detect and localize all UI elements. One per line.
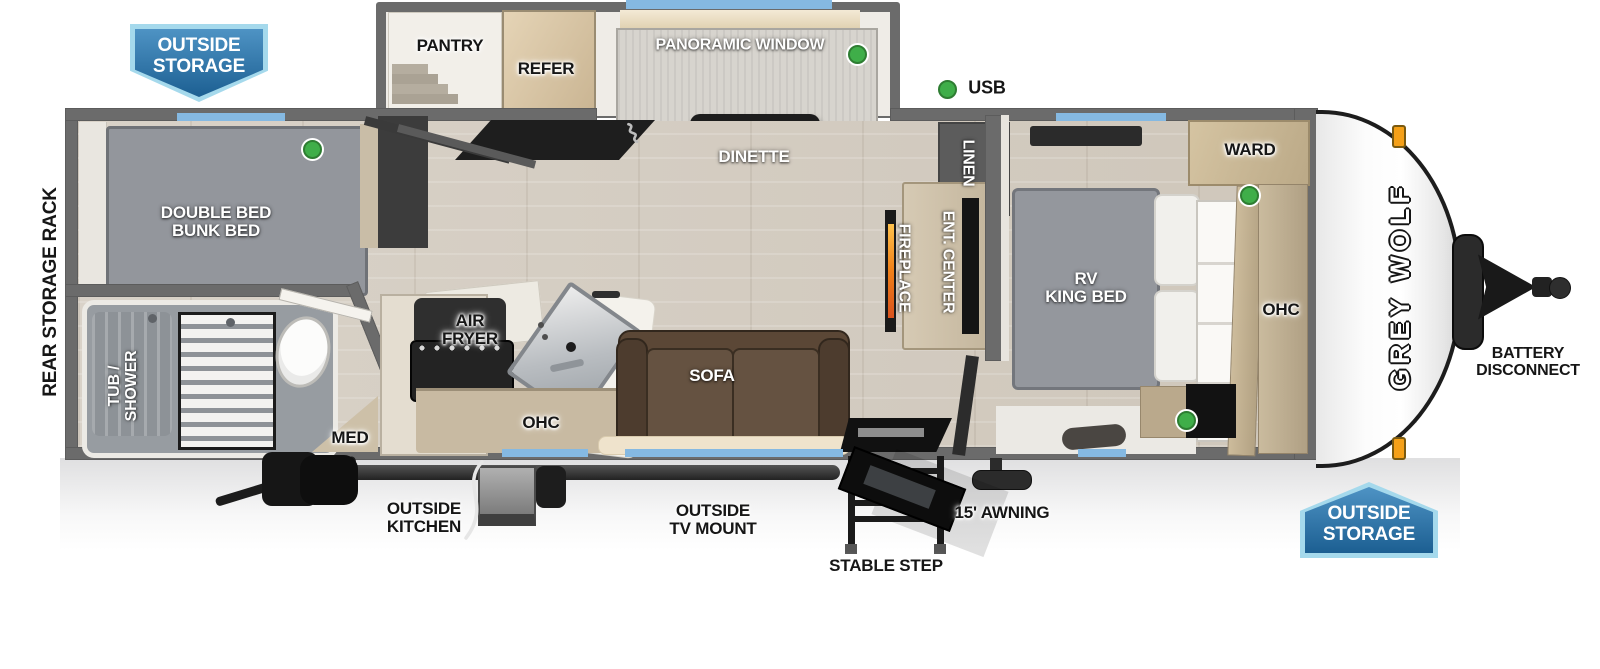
usb-port-icon [303,140,322,159]
awning-label: 15' AWNING [955,504,1050,522]
counter-handle [592,291,620,298]
fireplace-label: FIREPLACE [895,224,912,313]
brand-logo: GREY WOLF [1385,136,1425,436]
entry-step-tread [858,428,924,437]
sink-knob [542,334,548,340]
slideout-window-strip [626,0,832,9]
outside-tv-mount-label: OUTSIDE TV MOUNT [669,502,756,538]
usb-port-icon [1240,186,1259,205]
tub-shower-label: TUB / SHOWER [107,351,141,422]
wardrobe-shelf-line [1198,322,1234,325]
bedroom-wall-face [1001,115,1009,361]
bunk-bed-label: DOUBLE BED BUNK BED [161,204,271,240]
sofa-cushion [646,348,734,446]
bunk-head-pad [79,122,107,290]
sofa-label: SOFA [689,367,735,385]
stable-step-foot [845,544,857,554]
kitchen-ohc-cabinet [416,388,616,453]
outside-kitchen-label: OUTSIDE KITCHEN [387,500,461,536]
ent-center-label: ENT. CENTER [939,211,956,314]
tongue-jack [1452,234,1484,350]
battery-disconnect-label: BATTERY DISCONNECT [1476,346,1580,380]
marker-light-icon [1392,437,1406,460]
shower-head-icon [226,318,235,327]
pillow [1154,194,1200,286]
pillow [1154,290,1200,382]
kitchen-window-strip [502,449,588,457]
wardrobe-shelf-line [1198,262,1234,265]
sink-knob [538,322,544,328]
usb-port-icon [848,45,867,64]
bedroom-shelf-bar [1030,126,1142,146]
pantry-shelf-steps [392,64,428,74]
refer-label: REFER [518,60,575,78]
rv-floorplan: PANTRY REFER PANORAMIC WINDOW DINETTE DO… [0,0,1600,669]
stable-step-foot [934,544,946,554]
kitchen-ohc-label: OHC [522,414,559,432]
shower-head-icon [148,314,157,323]
air-fryer-label: AIR FRYER [442,312,498,348]
pantry-label: PANTRY [417,37,484,55]
usb-legend-icon [938,80,957,99]
rear-storage-rack-label: REAR STORAGE RACK [41,187,61,397]
outside-storage-badge-text: OUTSIDE STORAGE [135,29,263,97]
pantry-shelf-steps [392,84,448,94]
bunk-window-strip [177,113,285,121]
dinette-window-sill [620,10,860,28]
hitch-a-frame [1478,250,1536,324]
shower-door-slats [178,312,276,450]
vent-squiggle-icon [624,122,646,144]
bedroom-top-window-strip [1056,113,1166,121]
tv-screen [962,198,979,334]
hitch-ball-knob [1549,277,1571,299]
fireplace-flame [888,224,894,318]
bedroom-bottom-window-strip [1078,449,1126,457]
pantry-shelf-steps [392,74,438,84]
dinette-label: DINETTE [718,148,789,166]
outside-storage-badge-top: OUTSIDE STORAGE [130,24,268,102]
ward-label: WARD [1224,141,1275,159]
panoramic-window-label: PANORAMIC WINDOW [656,38,825,55]
usb-legend-label: USB [968,79,1005,98]
stabilizer-pad [300,455,358,505]
king-bed-label: RV KING BED [1045,270,1127,306]
pantry-shelf-steps [392,94,458,104]
sofa-armrest [616,338,648,450]
bedroom-black-cabinet [1186,384,1236,438]
med-label: MED [331,429,368,447]
outside-kitchen-tank [536,466,566,508]
bedroom-ohc-label: OHC [1262,301,1299,319]
usb-port-icon [1177,411,1196,430]
sink-drain [566,342,576,352]
stable-step-label: STABLE STEP [829,557,943,575]
linen-label: LINEN [959,139,976,186]
bunk-wood-trim [360,124,378,248]
sofa-window-strip [625,449,843,457]
top-wall-left [65,108,597,121]
awning-rail [348,465,840,480]
sofa-cushion [732,348,820,446]
